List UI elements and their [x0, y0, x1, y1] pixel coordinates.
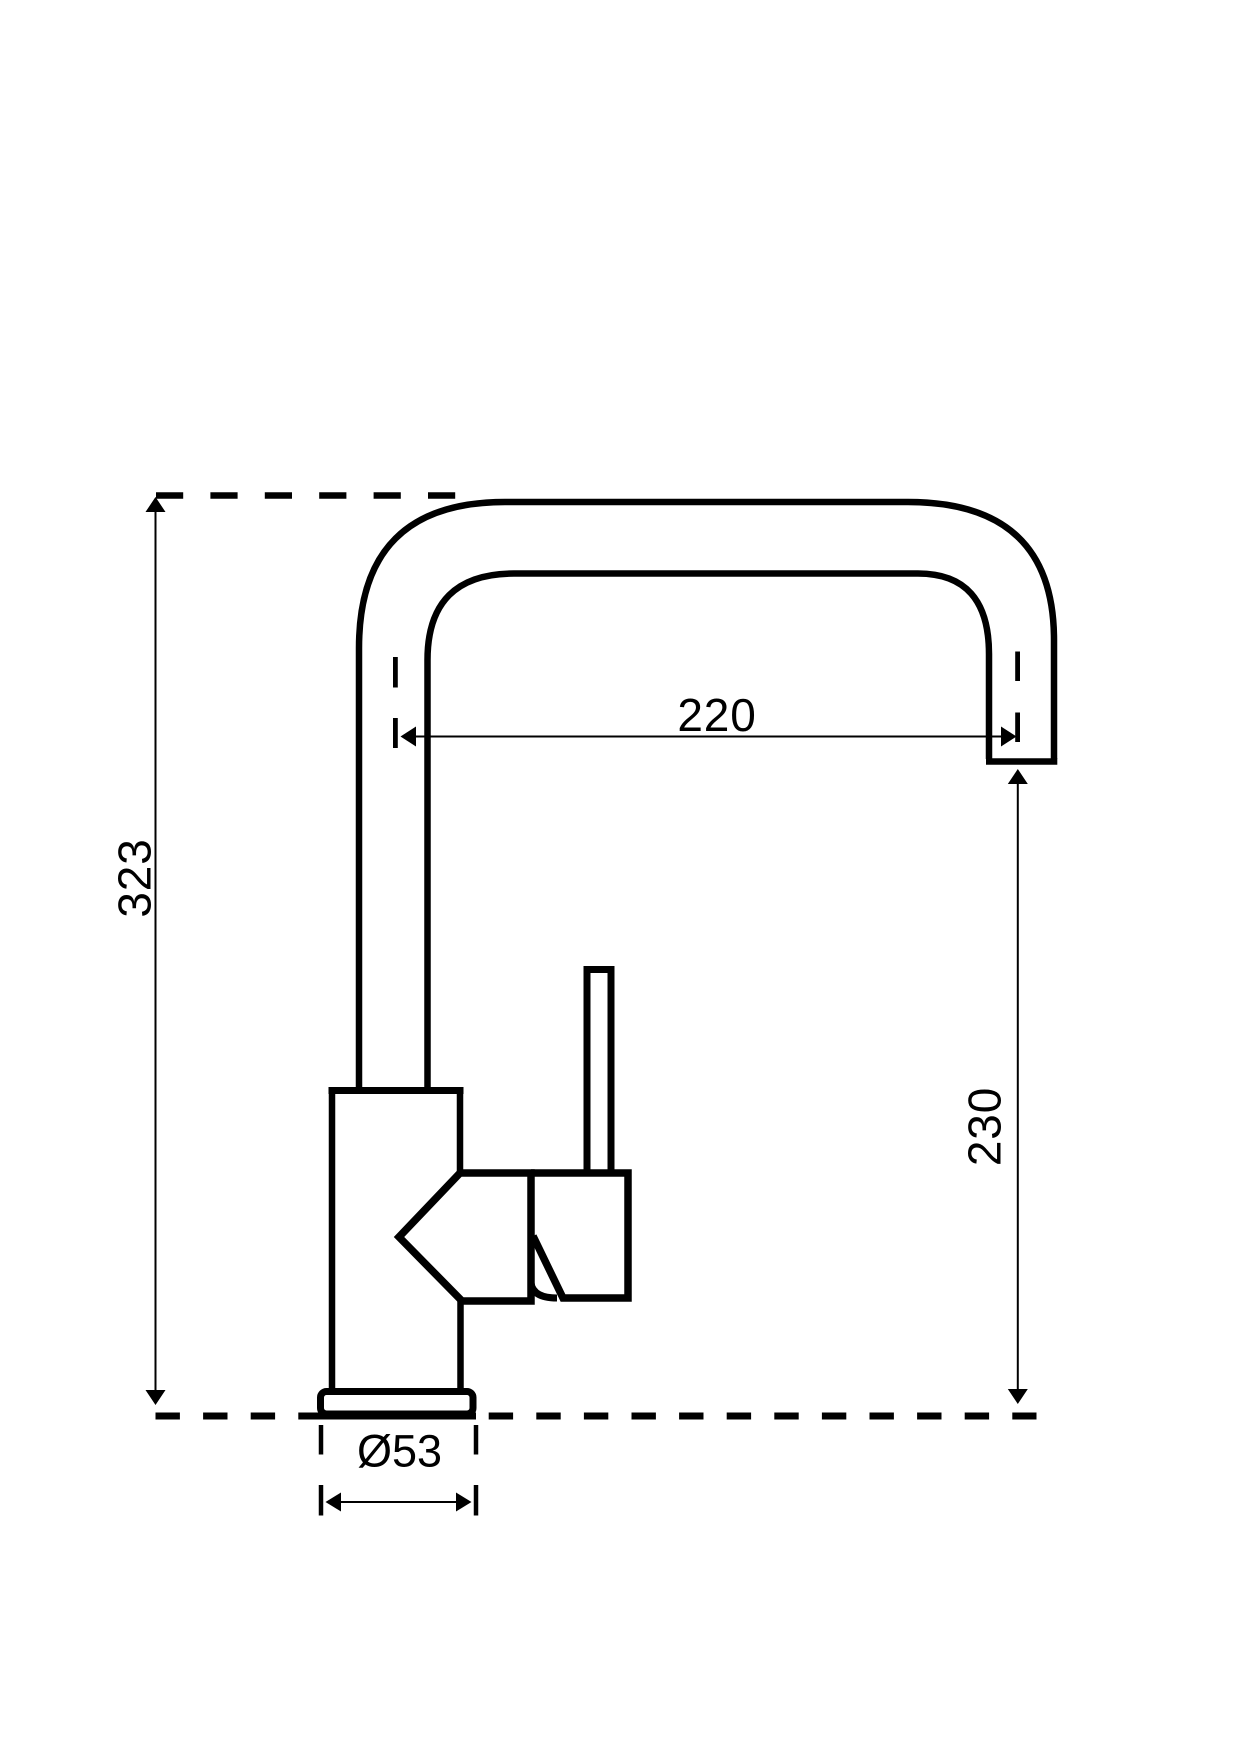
- svg-text:323: 323: [109, 838, 161, 917]
- svg-text:220: 220: [677, 689, 756, 741]
- svg-text:Ø53: Ø53: [357, 1426, 442, 1477]
- svg-text:230: 230: [959, 1087, 1011, 1166]
